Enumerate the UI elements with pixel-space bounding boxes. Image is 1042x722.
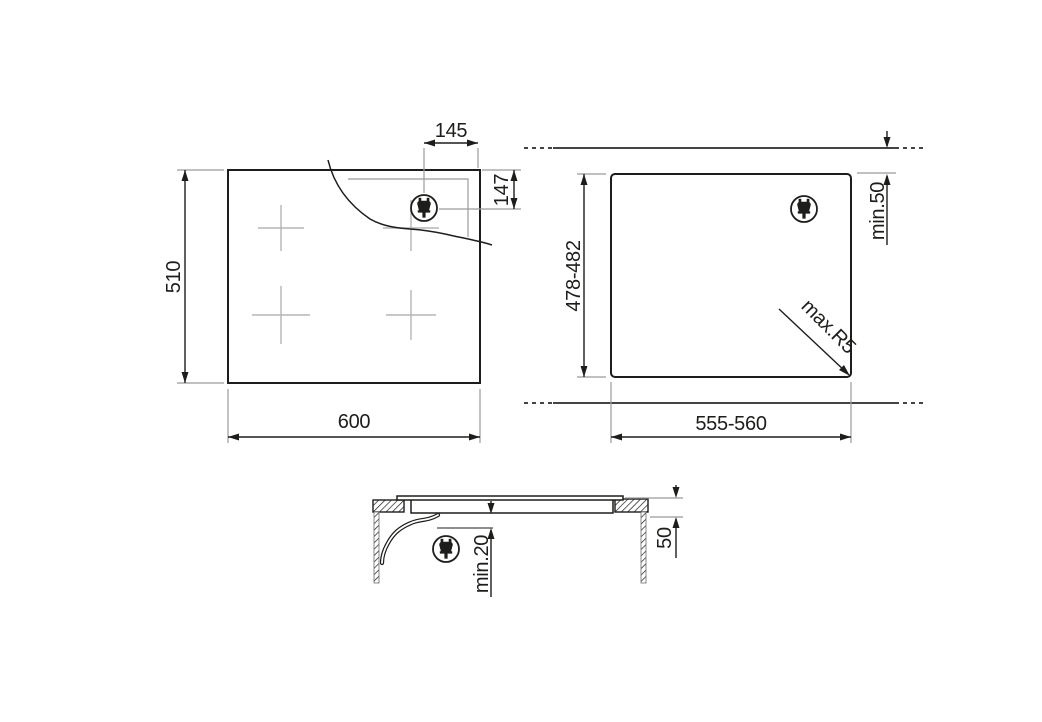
hob-glass-section [397,496,623,500]
hob-top-view: 510 600 145 147 [163,120,521,443]
diagram-page: 510 600 145 147 [0,0,1042,722]
worktop-section-left [373,500,404,512]
power-plug-icon [791,196,817,222]
dim-label-555-560: 555-560 [695,413,766,435]
dim-label-min50: min.50 [867,182,889,240]
hob-body-section [411,500,613,513]
cabinet-panel-left [374,512,379,583]
dimension-cutout-depth: 478-482 [563,174,606,377]
side-section-view: min.20 50 [373,485,683,597]
power-plug-icon [411,195,437,221]
power-cable [382,515,438,563]
dimension-cutout-width: 555-560 [611,382,851,443]
dim-label-600: 600 [338,411,371,433]
installation-diagram: 510 600 145 147 [0,0,1042,722]
dimension-clearance-below: min.20 [471,501,495,597]
cabinet-panel-right [641,512,646,583]
dim-label-50: 50 [654,527,676,549]
dim-label-510: 510 [163,261,185,294]
dim-label-min20: min.20 [471,535,493,593]
worktop-cutout-view: 478-482 555-560 min.50 max.R5 [524,131,926,443]
dimension-width-600: 600 [228,389,480,443]
dim-label-147: 147 [491,174,513,207]
hob-outline [228,170,480,383]
dim-label-145: 145 [435,120,468,142]
dim-label-478-482: 478-482 [563,240,585,311]
dimension-height-510: 510 [163,170,224,383]
worktop-section-right [615,499,648,512]
power-plug-icon [433,536,459,562]
dimension-worktop-thickness: 50 [625,485,683,558]
